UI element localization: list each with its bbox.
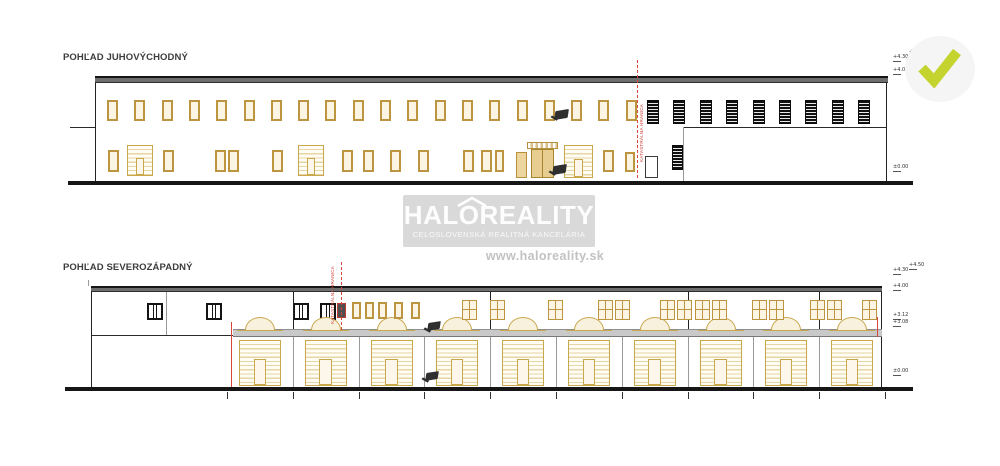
tick [293, 392, 294, 399]
window-cross [677, 300, 692, 320]
boundary-label: KATASTRÁLNA HRANICA [331, 264, 336, 324]
tick [688, 392, 689, 399]
vline [359, 337, 360, 387]
garage [765, 340, 807, 386]
window-tan [365, 302, 374, 319]
vline [753, 337, 754, 387]
window-cross [462, 300, 477, 320]
window-cross [810, 300, 825, 320]
arch [245, 317, 275, 330]
window-cross [769, 300, 784, 320]
arch [508, 317, 538, 330]
vline2 [293, 292, 294, 329]
ground [65, 387, 913, 391]
garage [436, 340, 478, 386]
tick [885, 392, 886, 399]
window-mullion [206, 303, 222, 320]
level-label: +4.50 [909, 263, 924, 270]
vline [293, 337, 294, 387]
boundary-line [341, 262, 342, 330]
roof [91, 286, 882, 292]
tick [556, 392, 557, 399]
window-cross [490, 300, 505, 320]
level-label: +3.08 [893, 320, 908, 327]
garage [831, 340, 873, 386]
window-mullion [147, 303, 163, 320]
window-tan [411, 302, 420, 319]
vline [819, 337, 820, 387]
hline [91, 335, 233, 336]
arch [311, 317, 341, 330]
garage [305, 340, 347, 386]
garage [239, 340, 281, 386]
window-tan [352, 302, 361, 319]
tick [424, 392, 425, 399]
garage [371, 340, 413, 386]
window-cross [827, 300, 842, 320]
vline2 [881, 292, 882, 387]
approval-check-icon [916, 46, 962, 88]
boundary-edge-line [231, 322, 232, 387]
window-cross [695, 300, 710, 320]
window-cross [598, 300, 613, 320]
vline [166, 292, 167, 335]
roof-icon [456, 196, 488, 207]
tick [490, 392, 491, 399]
watermark-logo: HALOREALITY CELOSLOVENSKÁ REALITNÁ KANCE… [403, 195, 595, 247]
tick [622, 392, 623, 399]
watermark-brand: HALOREALITY [403, 202, 595, 228]
tick [359, 392, 360, 399]
level-label: ±0.00 [893, 369, 908, 376]
vline2 [91, 292, 92, 387]
window-cross [660, 300, 675, 320]
level-label: +4.30 [893, 268, 908, 275]
boundary-edge-line [877, 317, 878, 337]
watermark-url: www.haloreality.sk [470, 249, 620, 263]
tick [753, 392, 754, 399]
vline [622, 337, 623, 387]
window-cross [712, 300, 727, 320]
window-cross [548, 300, 563, 320]
window-tan [378, 302, 387, 319]
blueprint-canvas: POHĽAD JUHOVÝCHODNÝ POHĽAD SEVEROZÁPADNÝ… [0, 0, 1000, 466]
garage [700, 340, 742, 386]
window-cross [862, 300, 877, 320]
tick [227, 392, 228, 399]
vline [556, 337, 557, 387]
vline [490, 337, 491, 387]
window-mullion [293, 303, 309, 320]
tick [819, 392, 820, 399]
garage [502, 340, 544, 386]
garage [568, 340, 610, 386]
window-cross [615, 300, 630, 320]
vline [88, 280, 89, 286]
vline [688, 337, 689, 387]
watermark-tagline: CELOSLOVENSKÁ REALITNÁ KANCELÁRIA [403, 230, 595, 239]
window-tan [394, 302, 403, 319]
window-cross [752, 300, 767, 320]
level-label: +4.00 [893, 284, 908, 291]
garage [634, 340, 676, 386]
